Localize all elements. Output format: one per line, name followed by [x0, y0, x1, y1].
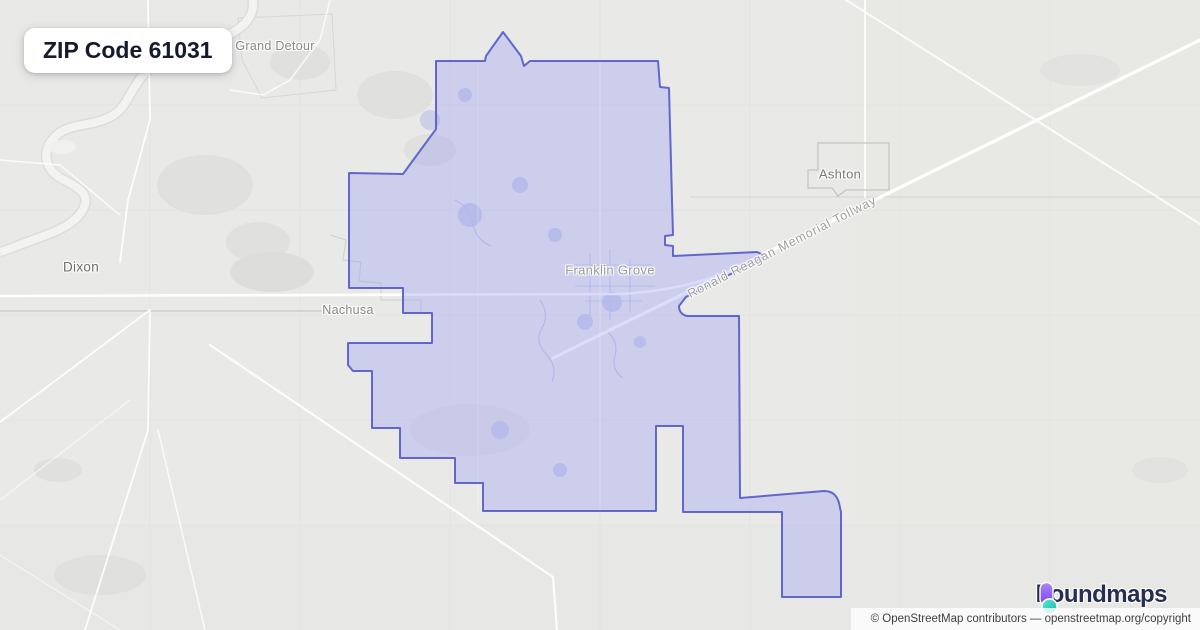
map-canvas[interactable]: Grand DetourDixonNachusaFranklin GroveAs… — [0, 0, 1200, 630]
zip-code-badge: ZIP Code 61031 — [24, 28, 232, 73]
map-base — [0, 0, 1200, 630]
attribution-link[interactable]: © OpenStreetMap contributors — openstree… — [871, 613, 1191, 625]
boundmaps-logo[interactable]: boundmaps — [1036, 581, 1168, 609]
attribution-bar: © OpenStreetMap contributors — openstree… — [851, 608, 1200, 630]
zip-code-badge-label: ZIP Code 61031 — [43, 37, 213, 63]
